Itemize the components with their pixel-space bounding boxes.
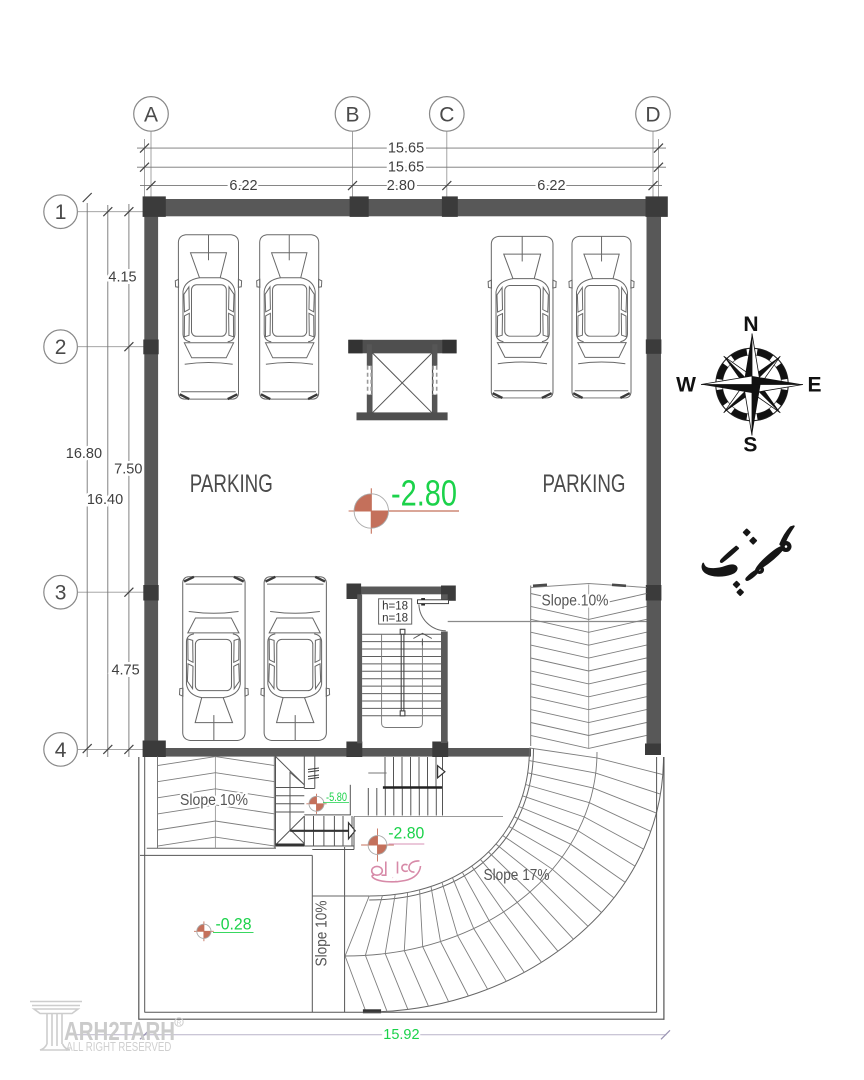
svg-text:C: C — [439, 103, 454, 126]
svg-text:A: A — [144, 103, 158, 126]
svg-text:Slope 10%: Slope 10% — [542, 593, 609, 610]
svg-text:2: 2 — [55, 336, 67, 359]
svg-text:1: 1 — [55, 201, 67, 224]
svg-text:4.75: 4.75 — [111, 663, 139, 679]
svg-text:D: D — [645, 103, 660, 126]
svg-text:Slope 17%: Slope 17% — [484, 867, 550, 884]
svg-text:7.50: 7.50 — [114, 461, 142, 477]
svg-text:ALL RIGHT RESERVED: ALL RIGHT RESERVED — [66, 1040, 171, 1054]
svg-text:15.92: 15.92 — [383, 1027, 419, 1043]
svg-text:R: R — [177, 1020, 182, 1027]
svg-text:4: 4 — [55, 739, 67, 762]
svg-text:16.80: 16.80 — [66, 446, 102, 462]
svg-text:h=18: h=18 — [382, 601, 408, 613]
svg-text:N: N — [743, 313, 758, 336]
svg-text:6.22: 6.22 — [229, 178, 257, 194]
svg-text:-0.28: -0.28 — [216, 916, 252, 934]
svg-text:15.65: 15.65 — [388, 160, 424, 176]
svg-text:15.65: 15.65 — [388, 141, 424, 157]
svg-text:B: B — [345, 103, 359, 126]
svg-text:-2.80: -2.80 — [391, 473, 457, 514]
svg-text:W: W — [676, 374, 696, 397]
svg-text:Slope 10%: Slope 10% — [313, 900, 330, 966]
svg-text:S: S — [743, 434, 757, 457]
svg-text:4.15: 4.15 — [108, 270, 136, 286]
svg-text:PARKING: PARKING — [190, 470, 273, 498]
svg-text:3: 3 — [55, 582, 67, 605]
svg-text:2.80: 2.80 — [387, 178, 415, 194]
svg-text:n=18: n=18 — [382, 613, 408, 625]
svg-text:6.22: 6.22 — [537, 178, 565, 194]
svg-text:PARKING: PARKING — [543, 470, 626, 498]
svg-text:Slope 10%: Slope 10% — [180, 792, 248, 809]
svg-text:E: E — [807, 374, 821, 397]
svg-text:16.40: 16.40 — [87, 492, 123, 508]
svg-text:-2.80: -2.80 — [388, 825, 424, 843]
